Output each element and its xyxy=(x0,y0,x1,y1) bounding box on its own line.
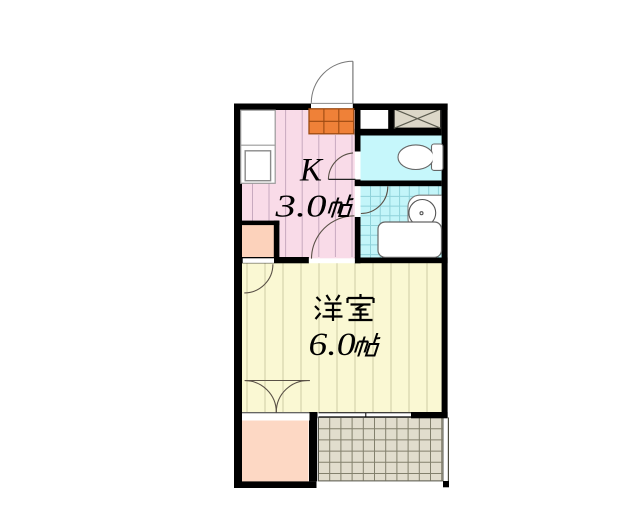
svg-text:K: K xyxy=(299,153,324,189)
svg-text:6.0: 6.0 xyxy=(309,327,357,363)
svg-text:3.0: 3.0 xyxy=(274,188,326,224)
